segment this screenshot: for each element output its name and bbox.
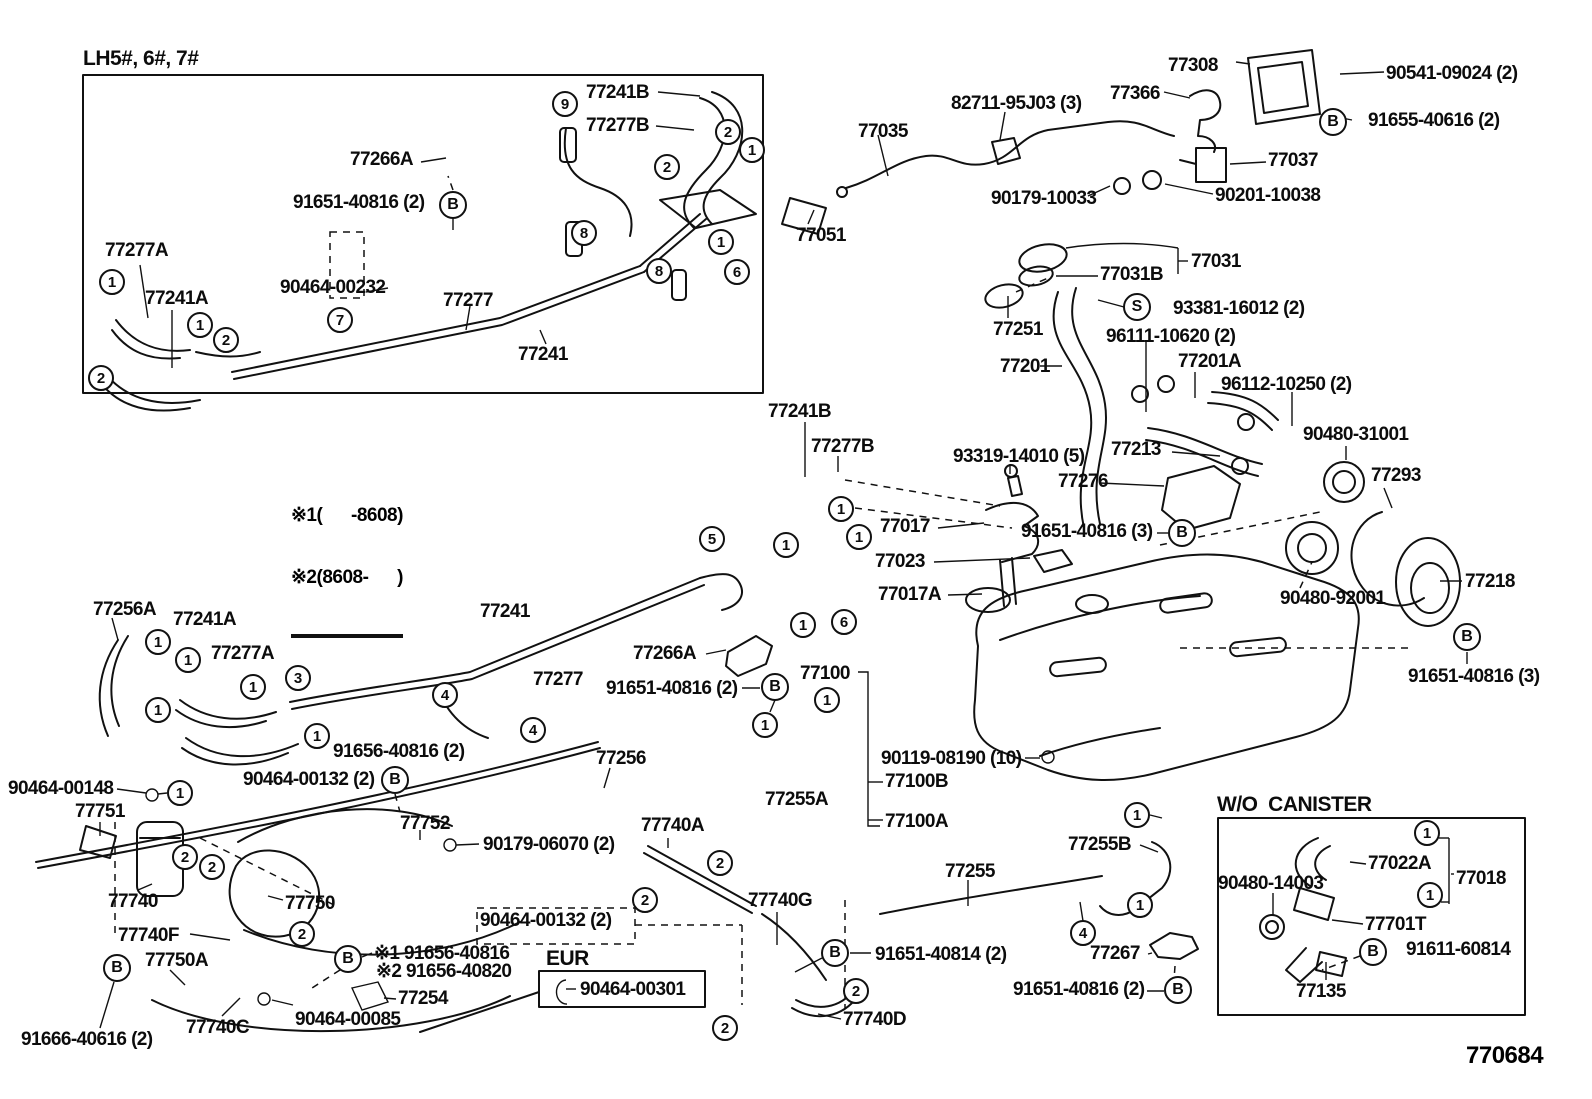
part-label-90464-00148: 90464-00148 bbox=[8, 779, 113, 799]
part-label-77241: 77241 bbox=[480, 602, 530, 622]
part-label-77201A: 77201A bbox=[1178, 352, 1241, 372]
part-label-91666-40616-2-: 91666-40616 (2) bbox=[21, 1030, 153, 1050]
part-label-77031B: 77031B bbox=[1100, 265, 1163, 285]
callout-number-2: 2 bbox=[843, 978, 869, 1004]
callout-number-8: 8 bbox=[646, 258, 672, 284]
callout-number-2: 2 bbox=[712, 1015, 738, 1041]
part-label-77308: 77308 bbox=[1168, 56, 1218, 76]
part-label-77293: 77293 bbox=[1371, 466, 1421, 486]
part-label-77037: 77037 bbox=[1268, 151, 1318, 171]
part-label-77100: 77100 bbox=[800, 664, 850, 684]
part-label-77255A: 77255A bbox=[765, 790, 828, 810]
callout-number-1: 1 bbox=[304, 723, 330, 749]
callout-number-1: 1 bbox=[790, 612, 816, 638]
callout-number-4: 4 bbox=[520, 717, 546, 743]
callout-number-1: 1 bbox=[1127, 892, 1153, 918]
part-label-77267: 77267 bbox=[1090, 944, 1140, 964]
note-line-1: ※1( -8608) bbox=[291, 506, 403, 527]
part-label-77241: 77241 bbox=[518, 345, 568, 365]
part-label-91651-40814-2-: 91651-40814 (2) bbox=[875, 945, 1007, 965]
callout-number-1: 1 bbox=[145, 629, 171, 655]
callout-number-1: 1 bbox=[1417, 882, 1443, 908]
part-label-77100A: 77100A bbox=[885, 812, 948, 832]
callout-number-1: 1 bbox=[1124, 802, 1150, 828]
callout-number-1: 1 bbox=[708, 229, 734, 255]
section-title-eur: EUR bbox=[546, 948, 589, 969]
part-label-90464-00132-2-: 90464-00132 (2) bbox=[243, 770, 375, 790]
part-label-91651-40816-2-: 91651-40816 (2) bbox=[293, 193, 425, 213]
part-label-77255B: 77255B bbox=[1068, 835, 1131, 855]
part-label-91651-40816-2-: 91651-40816 (2) bbox=[1013, 980, 1145, 1000]
callout-letter-B: B bbox=[1319, 108, 1347, 136]
part-label-77256: 77256 bbox=[596, 749, 646, 769]
part-label-90480-14003: 90480-14003 bbox=[1218, 874, 1323, 894]
callout-number-2: 2 bbox=[632, 887, 658, 913]
part-label-77750A: 77750A bbox=[145, 951, 208, 971]
callout-letter-S: S bbox=[1123, 293, 1151, 321]
part-label-77241B: 77241B bbox=[768, 402, 831, 422]
callout-number-2: 2 bbox=[715, 119, 741, 145]
part-label-77266A: 77266A bbox=[350, 150, 413, 170]
part-label-77100B: 77100B bbox=[885, 772, 948, 792]
part-label-77740F: 77740F bbox=[118, 926, 179, 946]
parts-diagram-fuel-tank-and-tube: LH5#, 6#, 7# W/O CANISTER EUR ※1( -8608)… bbox=[0, 0, 1592, 1099]
callout-number-4: 4 bbox=[1070, 920, 1096, 946]
section-title-lh5: LH5#, 6#, 7# bbox=[83, 48, 198, 69]
part-label-90179-06070-2-: 90179-06070 (2) bbox=[483, 835, 615, 855]
callout-letter-B: B bbox=[1359, 938, 1387, 966]
callout-letter-B: B bbox=[381, 766, 409, 794]
part-label-93381-16012-2-: 93381-16012 (2) bbox=[1173, 299, 1305, 319]
callout-number-4: 4 bbox=[432, 682, 458, 708]
part-label-77017A: 77017A bbox=[878, 585, 941, 605]
callout-letter-B: B bbox=[761, 673, 789, 701]
part-label-91611-60814: 91611-60814 bbox=[1406, 940, 1510, 960]
part-label-77255: 77255 bbox=[945, 862, 995, 882]
part-label-77752: 77752 bbox=[400, 814, 450, 834]
part-label-77023: 77023 bbox=[875, 552, 925, 572]
callout-number-1: 1 bbox=[846, 524, 872, 550]
callout-letter-B: B bbox=[439, 191, 467, 219]
callout-number-2: 2 bbox=[289, 921, 315, 947]
callout-number-1: 1 bbox=[739, 137, 765, 163]
callout-number-8: 8 bbox=[571, 220, 597, 246]
part-label-77017: 77017 bbox=[880, 517, 930, 537]
part-label-90179-10033: 90179-10033 bbox=[991, 189, 1096, 209]
callout-number-3: 3 bbox=[285, 665, 311, 691]
callout-number-1: 1 bbox=[773, 532, 799, 558]
part-label-77740C: 77740C bbox=[186, 1018, 249, 1038]
part-label-77241B: 77241B bbox=[586, 83, 649, 103]
part-label-77740G: 77740G bbox=[748, 891, 812, 911]
part-label-77277: 77277 bbox=[533, 670, 583, 690]
callout-number-2: 2 bbox=[172, 844, 198, 870]
part-label-77277A: 77277A bbox=[211, 644, 274, 664]
callout-number-1: 1 bbox=[187, 312, 213, 338]
part-label-90480-92001: 90480-92001 bbox=[1280, 589, 1385, 609]
part-label-96111-10620-2-: 96111-10620 (2) bbox=[1106, 327, 1235, 347]
part-label-90119-08190-10-: 90119-08190 (10) bbox=[881, 749, 1021, 769]
part-label-90464-00301: 90464-00301 bbox=[580, 980, 685, 1000]
part-label-77751: 77751 bbox=[75, 802, 125, 822]
part-label-77201: 77201 bbox=[1000, 357, 1050, 377]
part-label-77035: 77035 bbox=[858, 122, 908, 142]
callout-number-2: 2 bbox=[707, 850, 733, 876]
part-label-77277B: 77277B bbox=[811, 437, 874, 457]
lh5-section-box bbox=[83, 75, 763, 393]
part-label-77701T: 77701T bbox=[1365, 915, 1426, 935]
part-label-77277A: 77277A bbox=[105, 241, 168, 261]
part-label-77241A: 77241A bbox=[173, 610, 236, 630]
callout-number-9: 9 bbox=[552, 91, 578, 117]
callout-number-1: 1 bbox=[814, 687, 840, 713]
part-label-77254: 77254 bbox=[398, 989, 448, 1009]
part-label-77750: 77750 bbox=[285, 894, 335, 914]
part-label-90464-00132-2-: 90464-00132 (2) bbox=[480, 911, 612, 931]
callout-number-1: 1 bbox=[145, 697, 171, 723]
callout-number-1: 1 bbox=[175, 647, 201, 673]
part-label-96112-10250-2-: 96112-10250 (2) bbox=[1221, 375, 1351, 395]
callout-letter-B: B bbox=[103, 954, 131, 982]
callout-number-5: 5 bbox=[699, 526, 725, 552]
part-label-90464-00085: 90464-00085 bbox=[295, 1010, 400, 1030]
callout-number-1: 1 bbox=[752, 712, 778, 738]
part-label-77277: 77277 bbox=[443, 291, 493, 311]
part-label-77266A: 77266A bbox=[633, 644, 696, 664]
part-label-77241A: 77241A bbox=[145, 289, 208, 309]
part-label-77051: 77051 bbox=[796, 226, 846, 246]
part-label-77256A: 77256A bbox=[93, 600, 156, 620]
part-label-90480-31001: 90480-31001 bbox=[1303, 425, 1408, 445]
part-label-91656-40816-2-: 91656-40816 (2) bbox=[333, 742, 465, 762]
callout-letter-B: B bbox=[334, 945, 362, 973]
callout-number-1: 1 bbox=[240, 674, 266, 700]
note-line-2: ※2(8608- ) bbox=[291, 568, 403, 589]
part-label-91655-40616-2-: 91655-40616 (2) bbox=[1368, 111, 1500, 131]
callout-number-2: 2 bbox=[199, 854, 225, 880]
section-title-wo-canister: W/O CANISTER bbox=[1217, 794, 1372, 815]
part-label-77740A: 77740A bbox=[641, 816, 704, 836]
callout-letter-B: B bbox=[1164, 976, 1192, 1004]
callout-letter-B: B bbox=[1453, 623, 1481, 651]
part-label-90201-10038: 90201-10038 bbox=[1215, 186, 1320, 206]
applicability-notes: ※1( -8608) ※2(8608- ) bbox=[291, 464, 403, 638]
part-label-77740D: 77740D bbox=[843, 1010, 906, 1030]
callout-number-1: 1 bbox=[1414, 820, 1440, 846]
part-label-77251: 77251 bbox=[993, 320, 1043, 340]
part-label-77276: 77276 bbox=[1058, 472, 1108, 492]
part-label-90541-09024-2-: 90541-09024 (2) bbox=[1386, 64, 1518, 84]
part-label-77022A: 77022A bbox=[1368, 854, 1431, 874]
part-label-77740: 77740 bbox=[108, 892, 158, 912]
part-label-77135: 77135 bbox=[1296, 982, 1346, 1002]
callout-number-7: 7 bbox=[327, 307, 353, 333]
part-label-93319-14010-5-: 93319-14010 (5) bbox=[953, 447, 1085, 467]
part-label-77218: 77218 bbox=[1465, 572, 1515, 592]
callout-letter-B: B bbox=[821, 939, 849, 967]
callout-number-1: 1 bbox=[99, 269, 125, 295]
part-label--2-91656-40820: ※2 91656-40820 bbox=[376, 962, 511, 982]
part-label-77031: 77031 bbox=[1191, 252, 1241, 272]
diagram-number: 770684 bbox=[1466, 1042, 1543, 1070]
callout-number-2: 2 bbox=[654, 154, 680, 180]
callout-number-2: 2 bbox=[88, 365, 114, 391]
callout-number-6: 6 bbox=[724, 259, 750, 285]
part-label-77018: 77018 bbox=[1456, 869, 1506, 889]
part-label-91651-40816-3-: 91651-40816 (3) bbox=[1408, 667, 1540, 687]
callout-number-2: 2 bbox=[213, 327, 239, 353]
part-label-91651-40816-3-: 91651-40816 (3) bbox=[1021, 522, 1153, 542]
part-label-82711-95J03-3-: 82711-95J03 (3) bbox=[951, 94, 1081, 114]
part-label-91651-40816-2-: 91651-40816 (2) bbox=[606, 679, 738, 699]
callout-number-1: 1 bbox=[167, 780, 193, 806]
callout-number-1: 1 bbox=[828, 496, 854, 522]
part-label-77366: 77366 bbox=[1110, 84, 1160, 104]
part-label-77277B: 77277B bbox=[586, 116, 649, 136]
callout-number-6: 6 bbox=[831, 609, 857, 635]
part-label-90464-00232: 90464-00232 bbox=[280, 278, 385, 298]
callout-letter-B: B bbox=[1168, 519, 1196, 547]
part-label-77213: 77213 bbox=[1111, 440, 1161, 460]
